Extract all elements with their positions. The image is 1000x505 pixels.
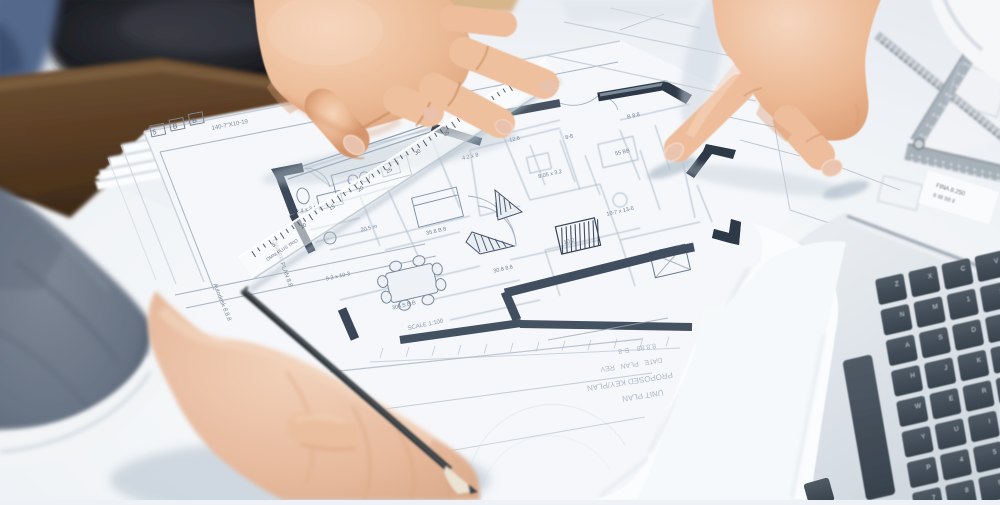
svg-text:M: M bbox=[932, 303, 938, 311]
